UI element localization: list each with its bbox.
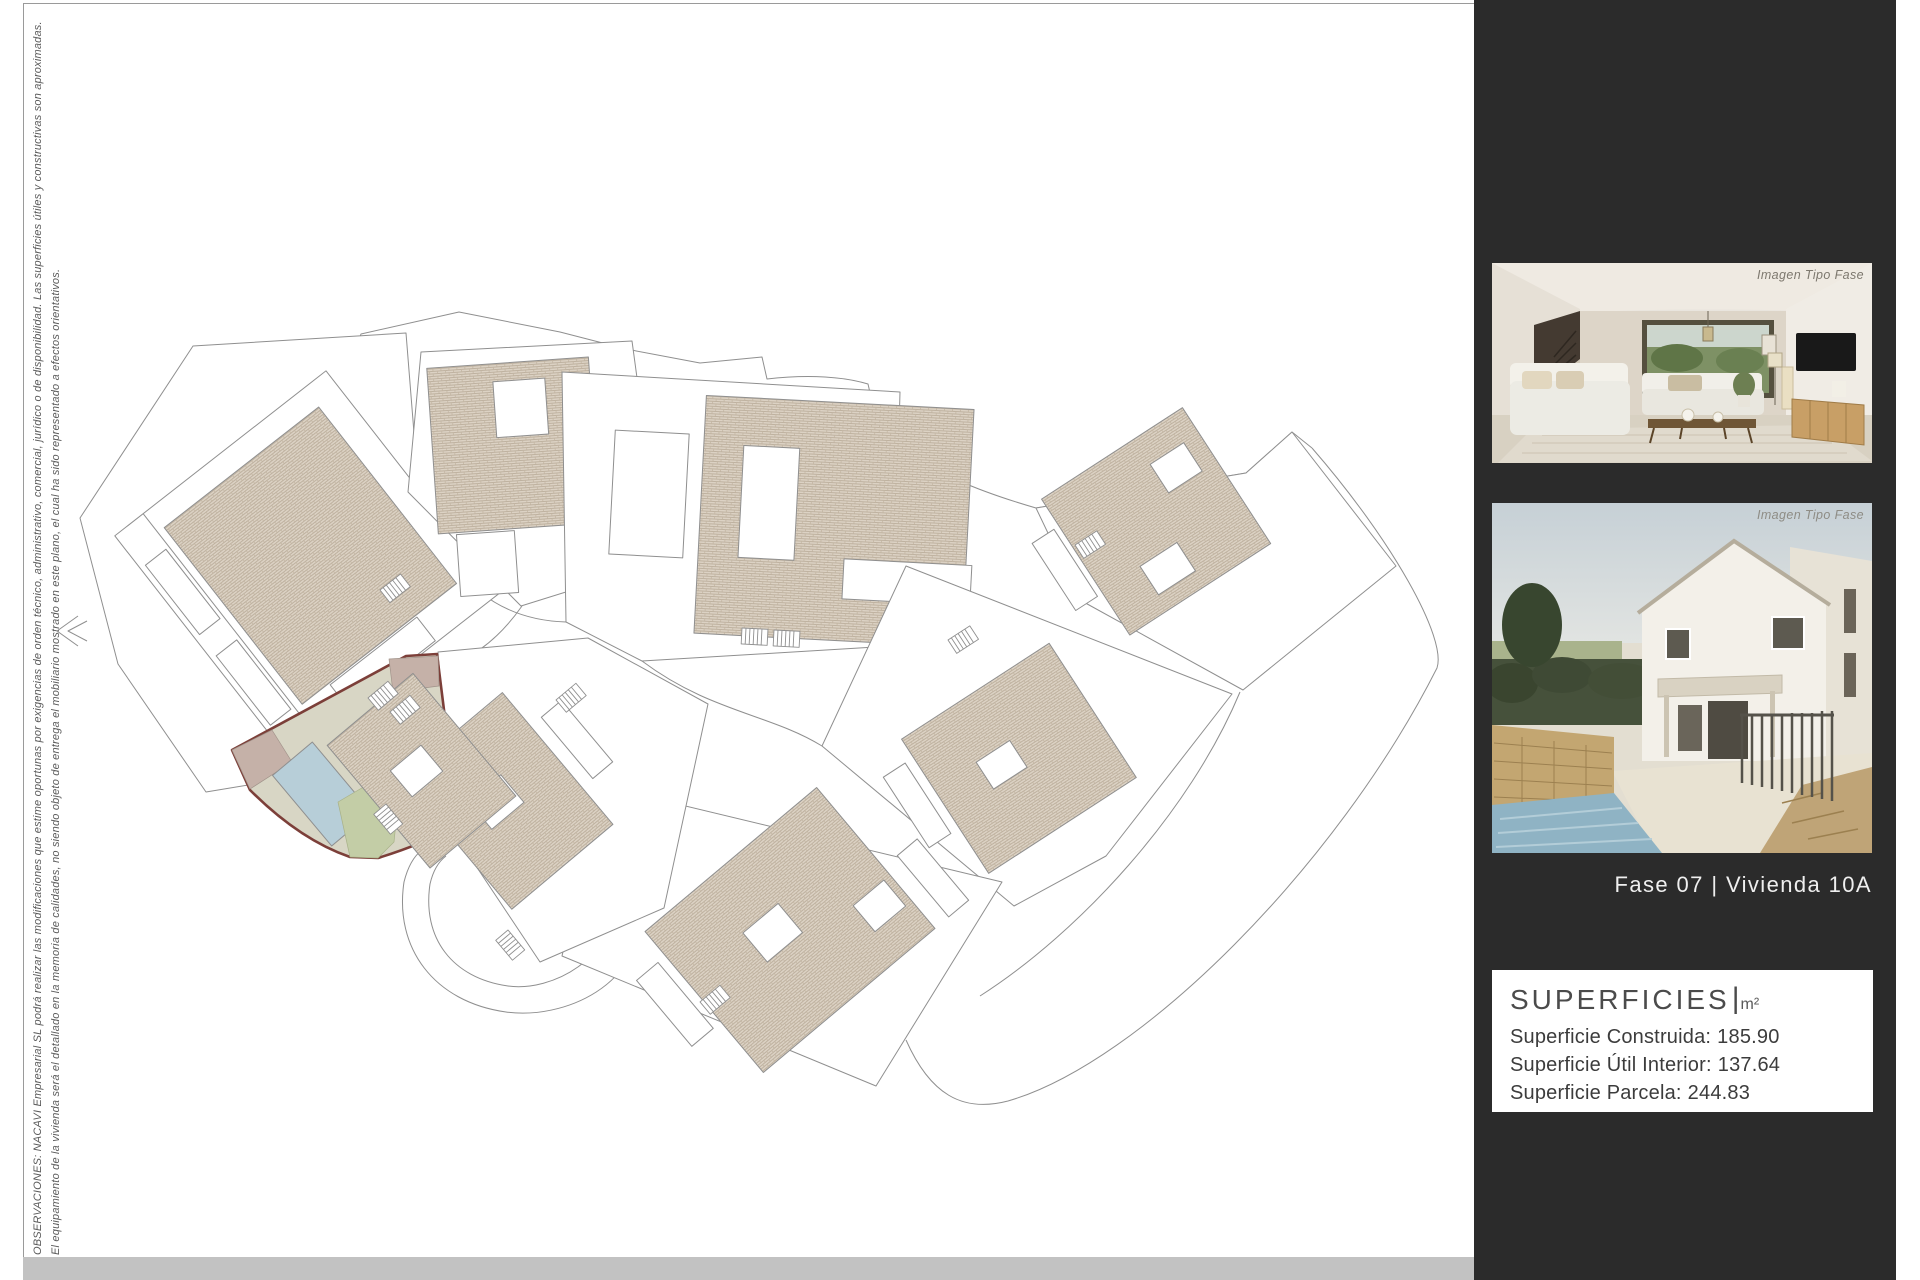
superficie-parcela-row: Superficie Parcela:244.83 — [1510, 1079, 1873, 1107]
house-exterior-illustration — [1492, 503, 1872, 853]
plan-sheet: OBSERVACIONES: NACAVI Empresarial SL pod… — [0, 0, 1474, 1280]
interior-render-photo: Imagen Tipo Fase — [1492, 263, 1872, 463]
photo-caption: Imagen Tipo Fase — [1757, 268, 1864, 282]
superficies-panel: SUPERFICIES|m² Superficie Construida:185… — [1492, 970, 1873, 1112]
unit-title: Fase 07 | Vivienda 10A — [1492, 872, 1872, 898]
right-margin — [1896, 0, 1920, 1280]
sidebar: Imagen Tipo Fase — [1474, 0, 1896, 1280]
superficies-title-text: SUPERFICIES — [1510, 986, 1730, 1014]
site-plan — [0, 0, 1474, 1280]
superficie-construida-row: Superficie Construida:185.90 — [1510, 1023, 1873, 1051]
superficies-title-separator: | — [1732, 984, 1740, 1014]
document-page: OBSERVACIONES: NACAVI Empresarial SL pod… — [0, 0, 1920, 1280]
exterior-render-photo: Imagen Tipo Fase — [1492, 503, 1872, 853]
superficies-title: SUPERFICIES|m² — [1510, 984, 1873, 1014]
footer-bar — [23, 1257, 1474, 1280]
north-arrow-icon — [57, 616, 87, 646]
superficies-title-unit: m² — [1741, 997, 1760, 1014]
superficie-util-row: Superficie Útil Interior:137.64 — [1510, 1051, 1873, 1079]
living-room-illustration — [1492, 263, 1872, 463]
photo-caption: Imagen Tipo Fase — [1757, 508, 1864, 522]
